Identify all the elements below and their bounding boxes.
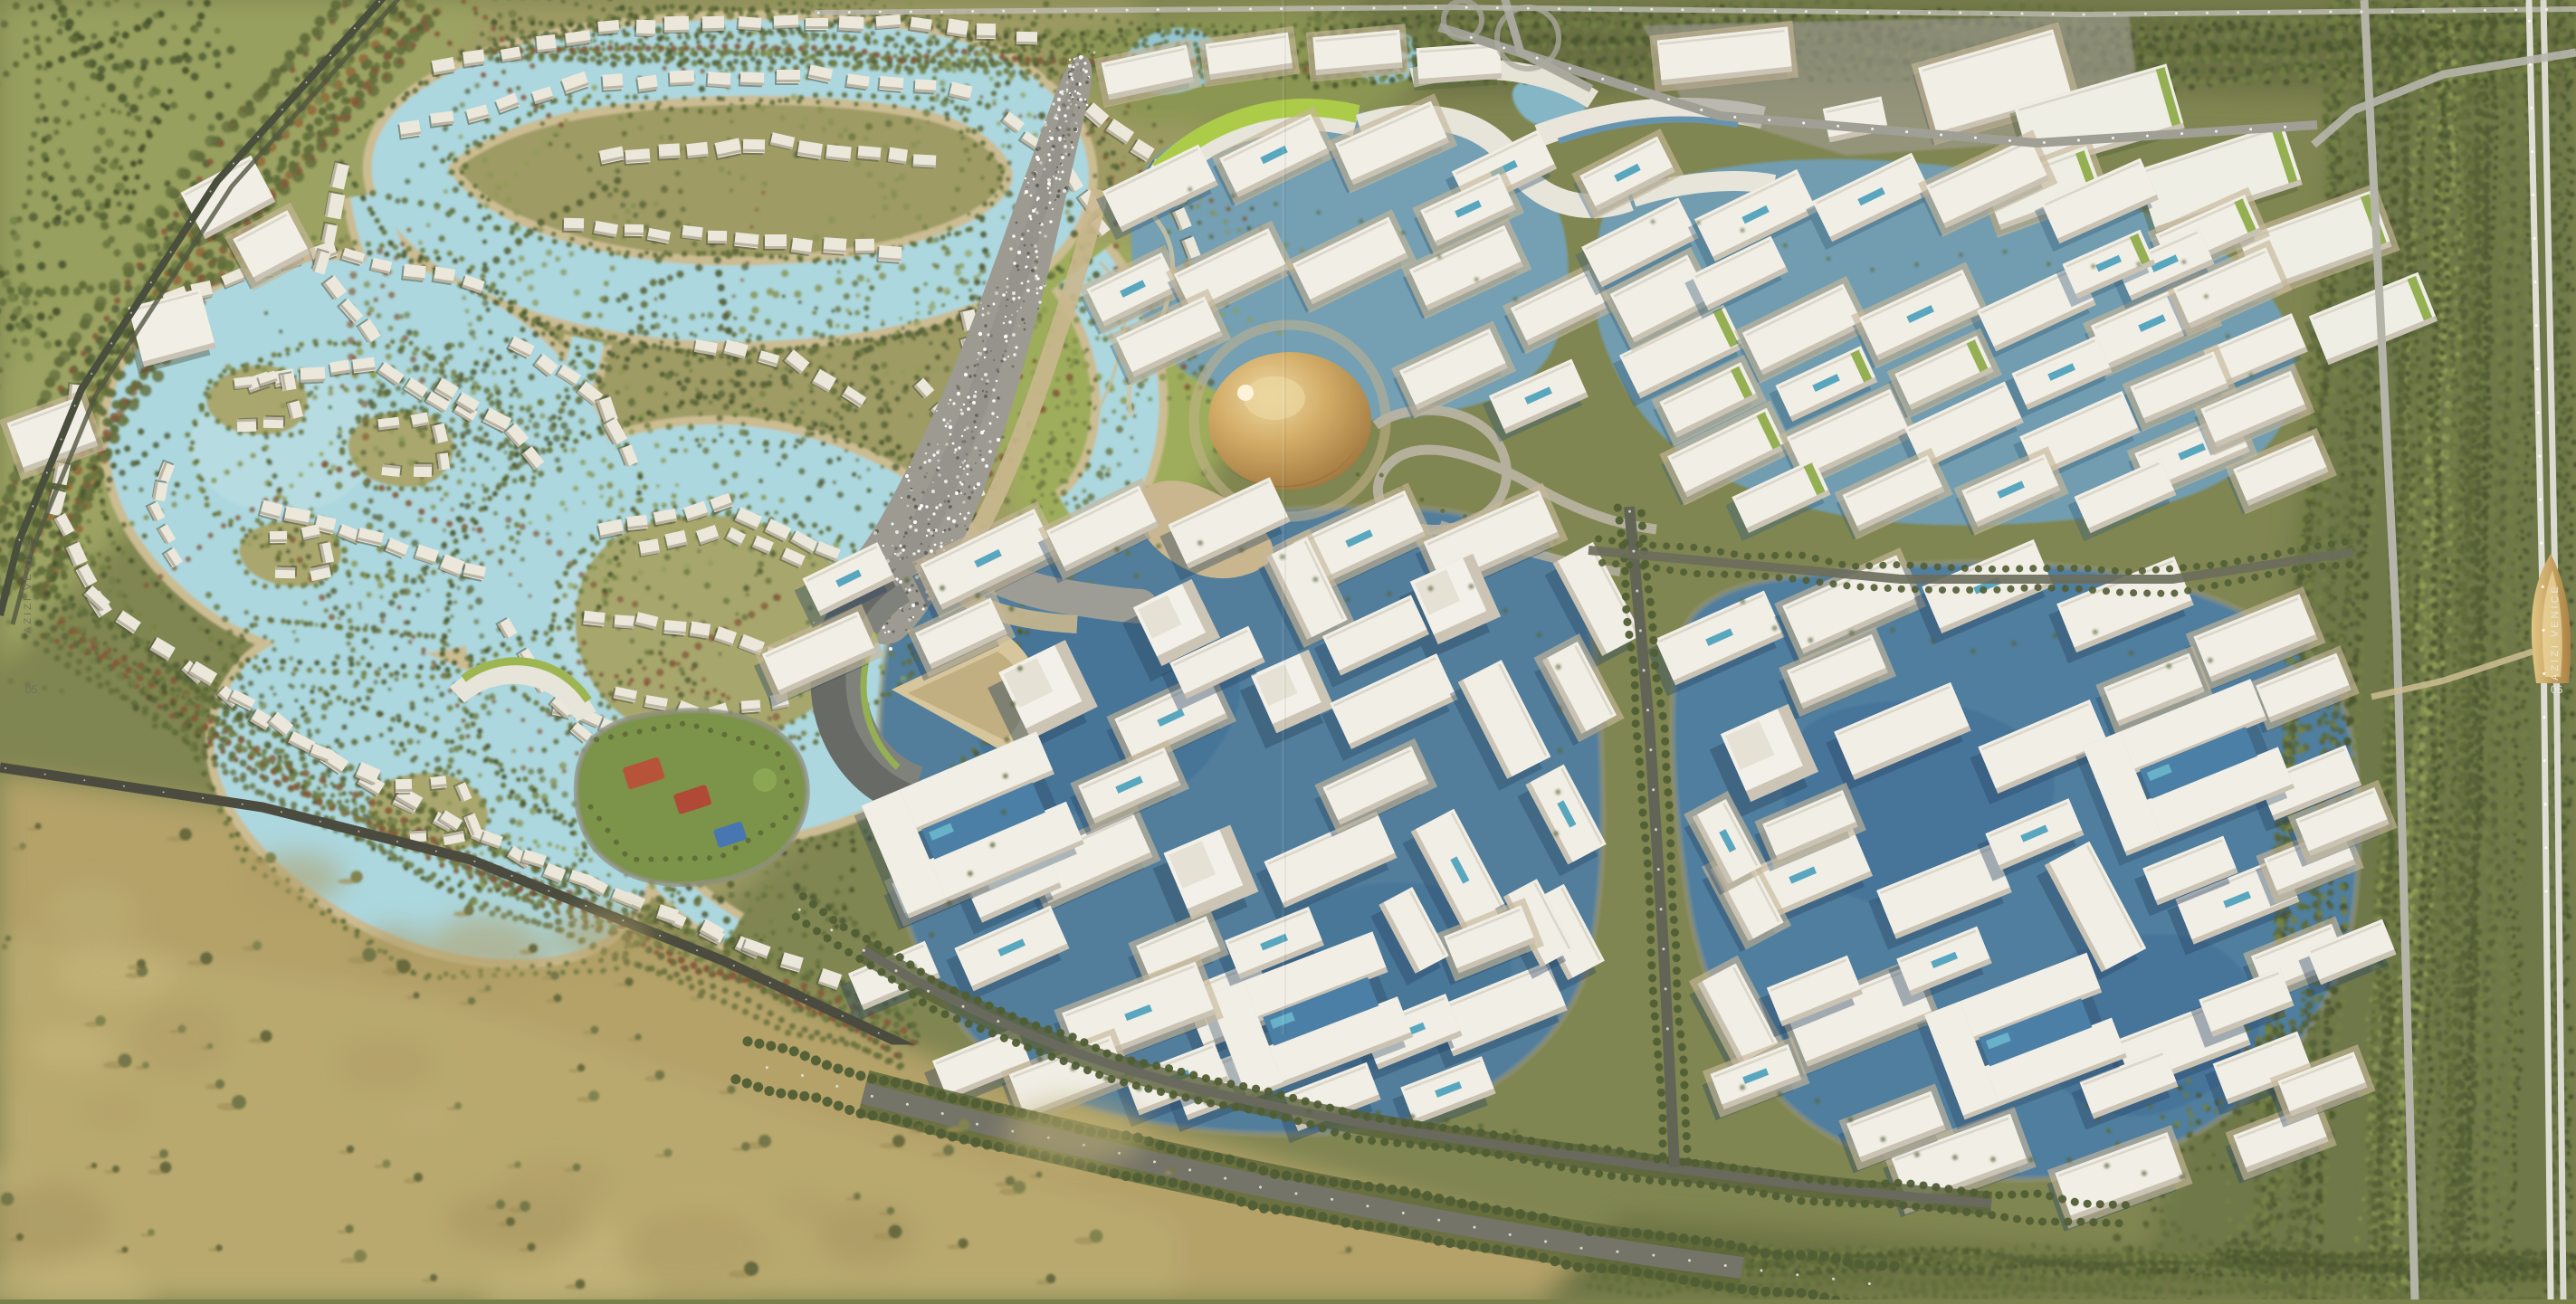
svg-text:05: 05 (25, 683, 38, 696)
svg-text:06: 06 (2551, 683, 2563, 696)
svg-text:AZIZI VENICE: AZIZI VENICE (2550, 584, 2561, 681)
svg-text:AZIZI VENICE: AZIZI VENICE (23, 537, 33, 633)
